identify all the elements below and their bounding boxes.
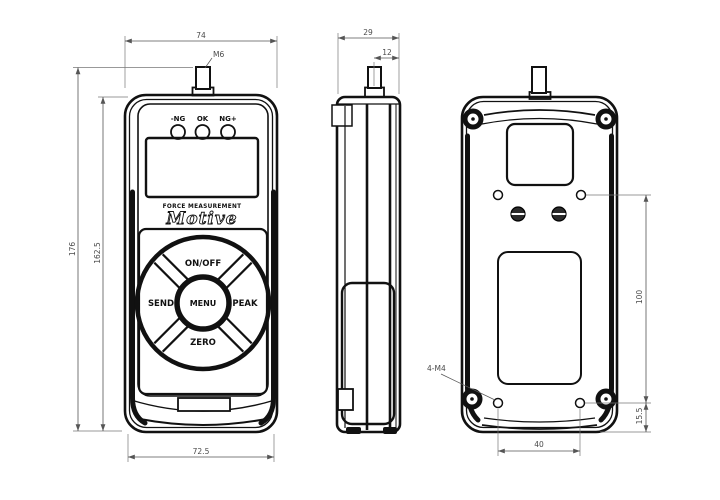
button-label-peak: PEAK (232, 299, 258, 309)
dim-hole-bottom-offset: 15.5 (635, 407, 644, 424)
dim-shaft-thread: M6 (213, 50, 224, 59)
dim-shaft-offset: 12 (382, 48, 392, 57)
front-shaft (196, 67, 210, 89)
drawing-canvas: -NG OK NG+ FORCE MEASUREMENT Motive ON/O… (0, 0, 720, 500)
battery-cover-panel (498, 252, 581, 384)
mount-hole-top-right (577, 191, 586, 200)
dim-hole-spacing-v: 100 (635, 290, 644, 305)
back-grip-right (601, 136, 612, 420)
back-grip-left (468, 136, 479, 420)
side-foot-right (383, 427, 397, 434)
dim-front-width: 74 (196, 31, 206, 40)
corner-screws (462, 109, 617, 410)
back-top-band-upper (484, 110, 595, 115)
dim-body-height: 162.5 (93, 242, 102, 264)
button-label-zero: ZERO (190, 338, 216, 348)
side-connector-bump (338, 389, 353, 410)
back-view (462, 67, 618, 432)
button-label-onoff: ON/OFF (185, 259, 221, 269)
button-label-send: SEND (148, 299, 174, 309)
side-shaft (368, 67, 381, 88)
dim-hole-spacing-h: 40 (534, 440, 544, 449)
front-bottom-cap-line (140, 419, 266, 425)
indicator-label-ok: OK (197, 115, 209, 123)
back-body-inner-line (467, 102, 613, 428)
indicator-label-ng-minus: -NG (171, 115, 186, 123)
side-foot-left (346, 427, 361, 434)
lcd-display (146, 138, 258, 197)
dim-bottom-width: 72.5 (193, 447, 210, 456)
slotted-screws (511, 207, 566, 221)
dim-side-depth: 29 (363, 28, 373, 37)
mount-hole-top-left (494, 191, 503, 200)
side-front-notch (332, 105, 352, 126)
side-view (332, 67, 400, 434)
dim-mount-thread: 4-M4 (427, 364, 446, 373)
back-shaft (532, 67, 546, 93)
front-connector-port (178, 398, 230, 411)
technical-drawing: -NG OK NG+ FORCE MEASUREMENT Motive ON/O… (0, 0, 720, 500)
back-bottom-band-upper (484, 418, 595, 422)
mount-hole-bottom-right (576, 399, 585, 408)
back-body-outline (462, 97, 617, 432)
dim-total-height: 176 (68, 242, 77, 257)
brand-logo: Motive (165, 209, 237, 229)
back-display-opening (507, 124, 573, 185)
indicator-label-ng-plus: NG+ (219, 115, 237, 123)
button-label-menu: MENU (190, 299, 217, 308)
